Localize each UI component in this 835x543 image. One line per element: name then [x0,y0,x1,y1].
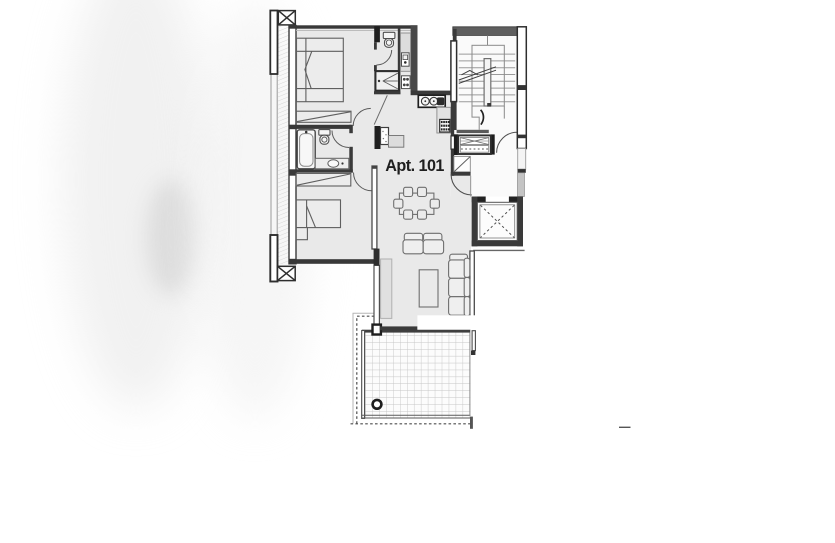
svg-text:Apt. 101: Apt. 101 [385,157,444,175]
